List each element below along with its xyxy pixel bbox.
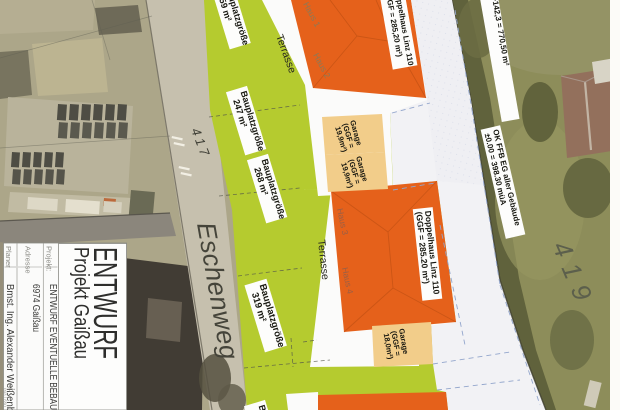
svg-text:Planer: Planer — [4, 246, 13, 268]
svg-text:6974 Gaißau: 6974 Gaißau — [30, 284, 41, 332]
svg-text:093 / 650: 093 / 650 — [3, 388, 8, 407]
svg-text:Adresse: Adresse — [24, 246, 33, 274]
svg-text:Projekt Gaißau: Projekt Gaißau — [70, 247, 93, 359]
svg-text:ENTWURF EVENTUELLE BEBAU: ENTWURF EVENTUELLE BEBAU — [47, 284, 58, 410]
svg-text:Projekt:: Projekt: — [45, 246, 54, 271]
